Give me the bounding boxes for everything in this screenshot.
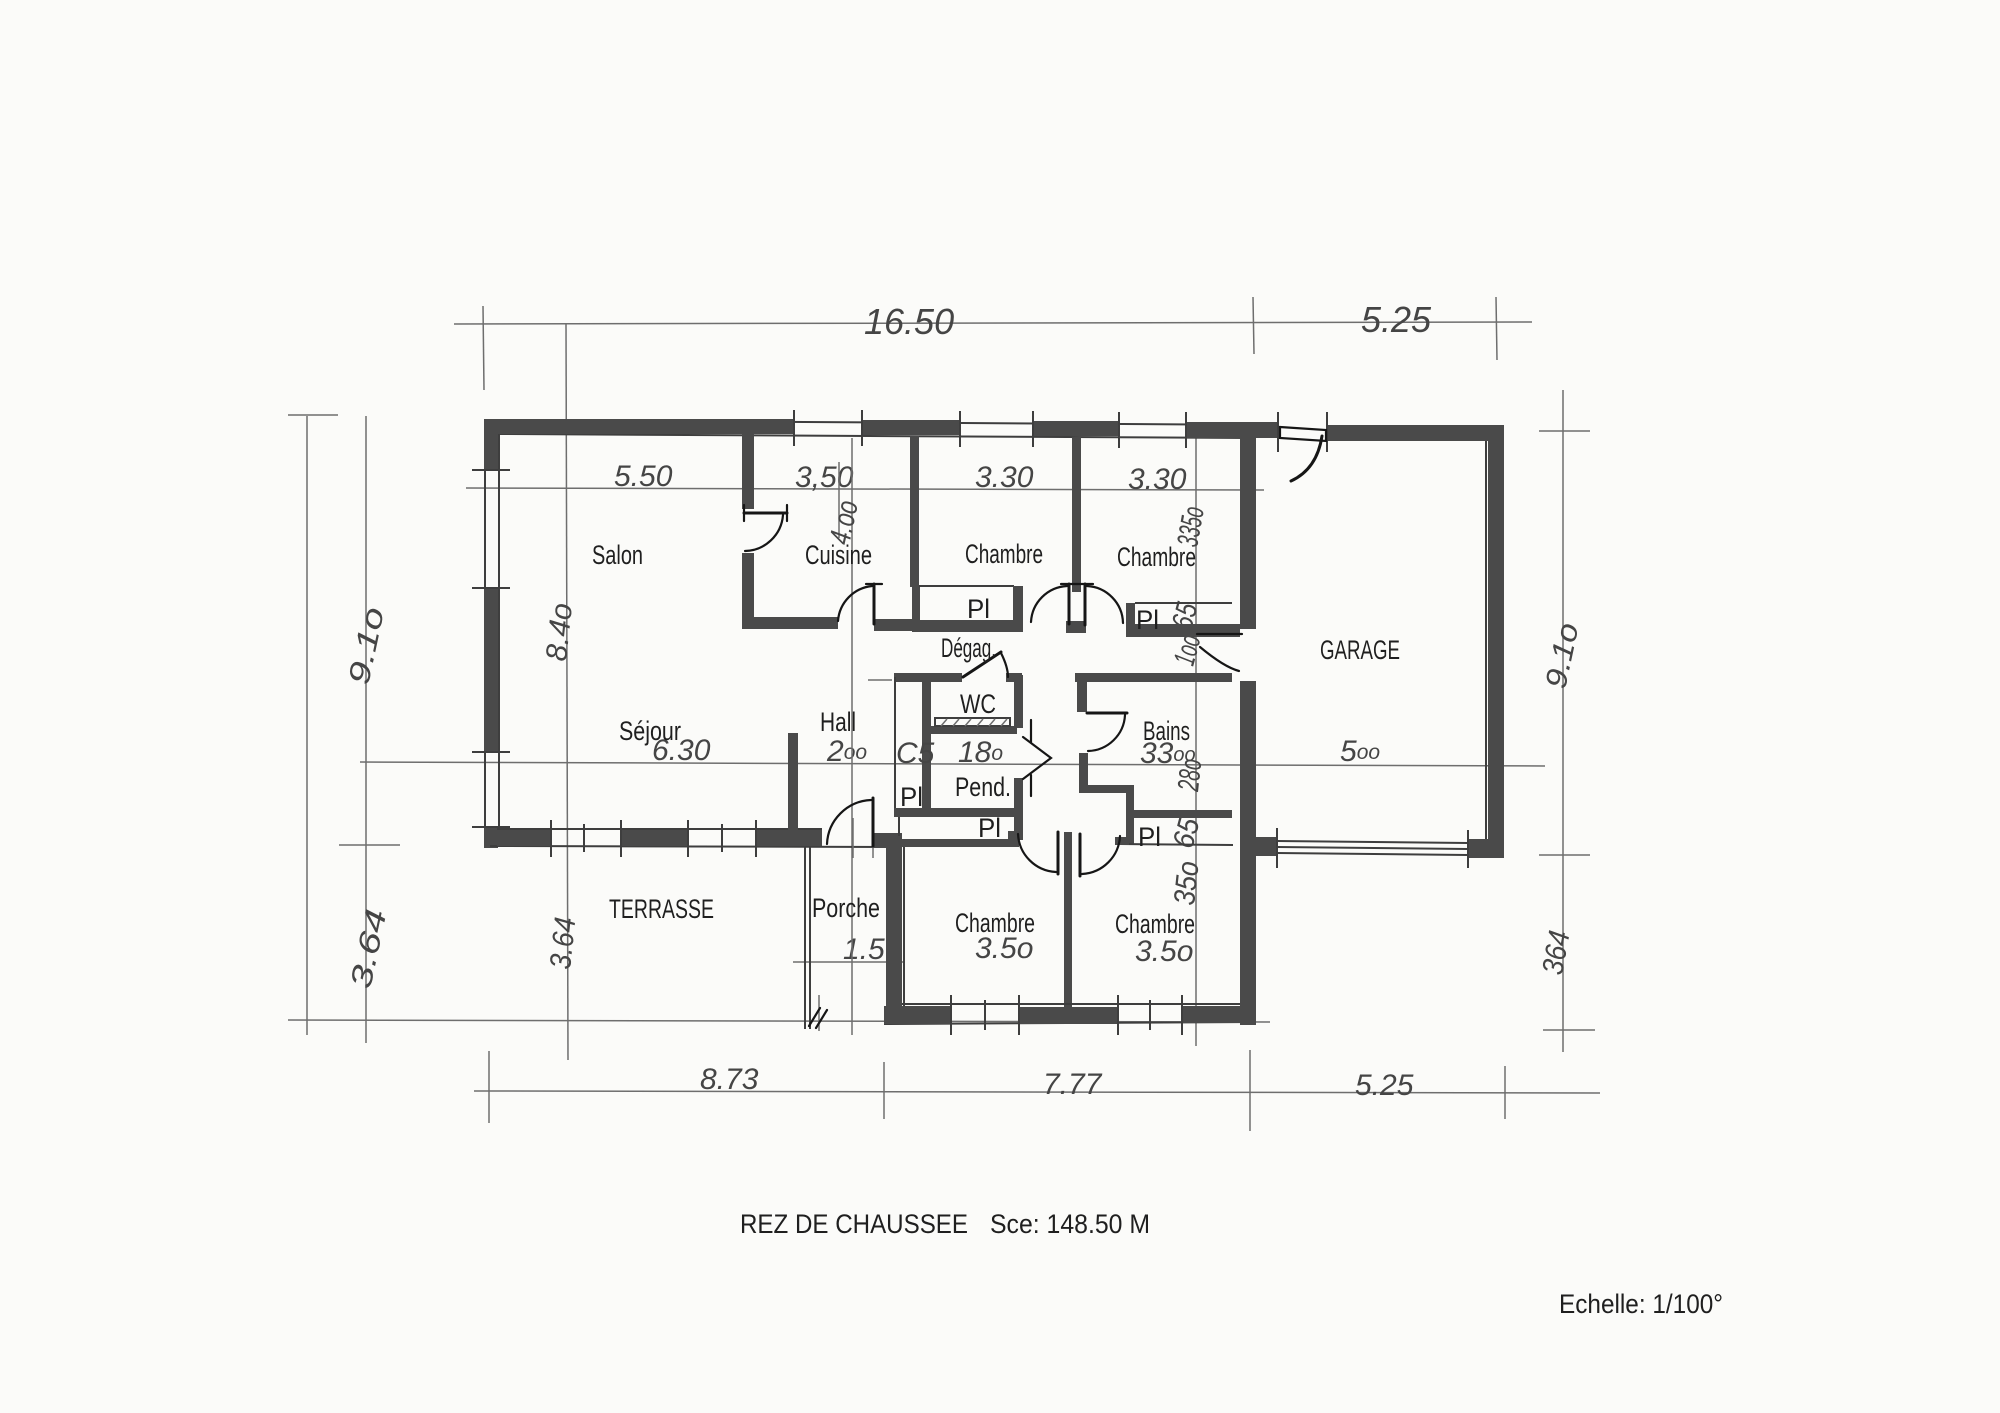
svg-text:8.4o: 8.4o [540, 602, 579, 663]
svg-text:8.73: 8.73 [700, 1063, 759, 1096]
svg-text:Salon: Salon [592, 540, 643, 570]
svg-text:Pl: Pl [978, 813, 1001, 843]
svg-text:Pl: Pl [967, 594, 990, 624]
svg-text:Pend.: Pend. [955, 772, 1011, 802]
svg-text:3.5o: 3.5o [975, 932, 1033, 965]
svg-text:C5: C5 [896, 737, 935, 770]
svg-text:REZ DE CHAUSSEE: REZ DE CHAUSSEE [740, 1209, 968, 1239]
svg-text:28o: 28o [1172, 757, 1208, 793]
svg-text:5.25: 5.25 [1355, 1069, 1414, 1102]
svg-text:Pl: Pl [1136, 605, 1159, 635]
svg-text:3,50: 3,50 [795, 461, 854, 494]
svg-text:GARAGE: GARAGE [1320, 635, 1400, 665]
svg-text:3.30: 3.30 [975, 461, 1034, 494]
svg-text:Echelle: 1/100°: Echelle: 1/100° [1559, 1289, 1723, 1319]
svg-text:5.50: 5.50 [614, 460, 673, 493]
svg-text:Chambre: Chambre [1117, 542, 1196, 572]
svg-text:Porche: Porche [812, 893, 880, 923]
svg-text:3.5o: 3.5o [1135, 935, 1193, 968]
svg-text:Sce: 148.50 M: Sce: 148.50 M [990, 1209, 1150, 1239]
svg-text:35o: 35o [1168, 860, 1205, 907]
svg-text:3.64: 3.64 [544, 916, 582, 971]
svg-text:Hall: Hall [820, 707, 856, 737]
svg-text:16.50: 16.50 [864, 301, 954, 342]
svg-text:Chambre: Chambre [965, 539, 1043, 569]
svg-text:WC: WC [960, 689, 996, 719]
svg-text:3.30: 3.30 [1128, 463, 1187, 496]
svg-text:7.77: 7.77 [1043, 1068, 1103, 1101]
svg-text:TERRASSE: TERRASSE [609, 894, 714, 924]
svg-text:Cuisine: Cuisine [805, 540, 872, 570]
svg-text:Pl: Pl [1138, 822, 1161, 852]
svg-text:Séjour: Séjour [619, 716, 681, 746]
svg-text:Bains: Bains [1143, 716, 1190, 746]
svg-text:5.25: 5.25 [1361, 299, 1432, 340]
svg-text:Pl: Pl [900, 782, 923, 812]
svg-text:Dégag.: Dégag. [941, 633, 996, 663]
